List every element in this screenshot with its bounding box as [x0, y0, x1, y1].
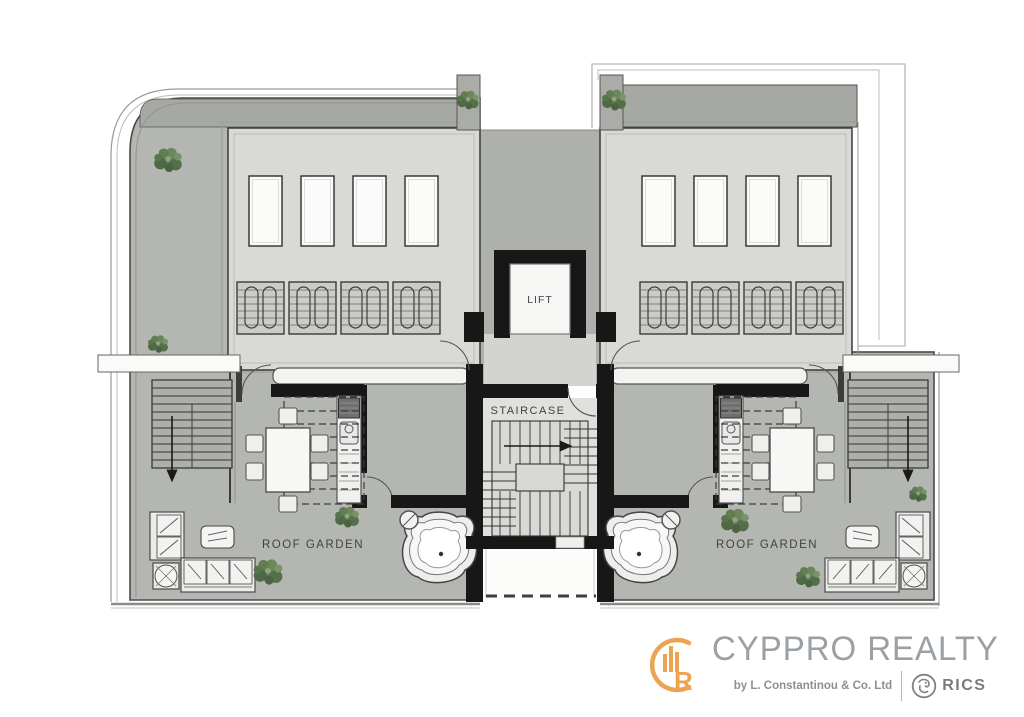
floor-plan: LIFT STAIRCASE ROOF GARDEN ROOF GARDEN [0, 0, 1024, 717]
lift-lobby [484, 334, 596, 386]
brand-logo: R CYPPRO REALTY by L. Constantinou & Co.… [644, 632, 1008, 701]
stair-flights [483, 421, 597, 536]
floor-plan-page: LIFT STAIRCASE ROOF GARDEN ROOF GARDEN R… [0, 0, 1024, 717]
monogram-letter: R [674, 666, 693, 696]
brand-byline: by L. Constantinou & Co. Ltd [734, 680, 892, 692]
brand-name: CYPPRO REALTY [712, 632, 999, 668]
logo-text-block: CYPPRO REALTY by L. Constantinou & Co. L… [712, 632, 1008, 701]
staircase-label: STAIRCASE [490, 405, 565, 417]
divider [901, 671, 902, 701]
left-beam-band [98, 355, 240, 372]
logo-subline: by L. Constantinou & Co. Ltd RICS [734, 671, 987, 701]
lift-label: LIFT [527, 294, 553, 306]
brand-monogram-icon: R [644, 634, 702, 696]
roof-garden-right-label: ROOF GARDEN [716, 539, 818, 551]
rics-label: RICS [942, 677, 986, 695]
rics-badge: RICS [911, 673, 986, 699]
void-area [483, 549, 597, 600]
roof-garden-left-label: ROOF GARDEN [262, 539, 364, 551]
right-beam-band [843, 355, 959, 372]
rics-lion-icon [911, 673, 937, 699]
